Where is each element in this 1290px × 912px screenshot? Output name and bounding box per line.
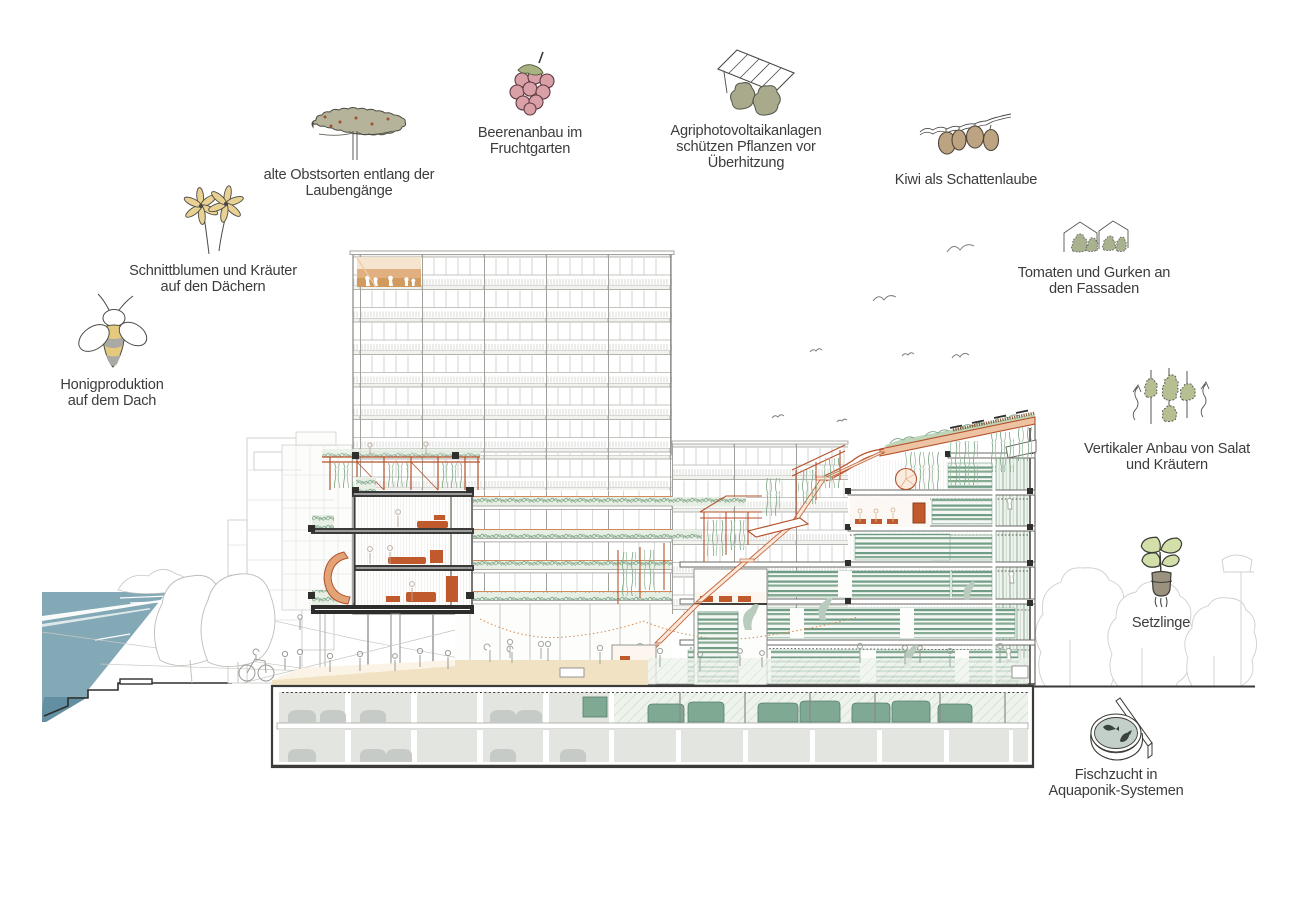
svg-text:auf den Dächern: auf den Dächern bbox=[161, 279, 266, 295]
svg-text:Fischzucht in: Fischzucht in bbox=[1075, 767, 1158, 783]
svg-text:schützen Pflanzen vor: schützen Pflanzen vor bbox=[676, 139, 816, 155]
svg-text:auf dem Dach: auf dem Dach bbox=[68, 393, 157, 409]
svg-text:Kiwi als Schattenlaube: Kiwi als Schattenlaube bbox=[895, 172, 1038, 188]
svg-text:Setzlinge: Setzlinge bbox=[1132, 615, 1190, 631]
svg-text:Aquaponik-Systemen: Aquaponik-Systemen bbox=[1048, 783, 1183, 799]
svg-text:Tomaten und Gurken an: Tomaten und Gurken an bbox=[1018, 265, 1170, 281]
svg-text:und Kräutern: und Kräutern bbox=[1126, 457, 1208, 473]
svg-text:alte Obstsorten entlang der: alte Obstsorten entlang der bbox=[264, 167, 435, 183]
svg-text:den Fassaden: den Fassaden bbox=[1049, 281, 1139, 297]
svg-text:Überhitzung: Überhitzung bbox=[708, 153, 785, 171]
svg-text:Beerenanbau im: Beerenanbau im bbox=[478, 125, 582, 141]
svg-text:Laubengänge: Laubengänge bbox=[305, 183, 392, 199]
svg-text:Fruchtgarten: Fruchtgarten bbox=[490, 141, 570, 157]
svg-text:Vertikaler Anbau von Salat: Vertikaler Anbau von Salat bbox=[1084, 441, 1250, 457]
svg-text:Honigproduktion: Honigproduktion bbox=[60, 377, 163, 393]
svg-text:Schnittblumen und Kräuter: Schnittblumen und Kräuter bbox=[129, 263, 297, 279]
svg-text:Agriphotovoltaikanlagen: Agriphotovoltaikanlagen bbox=[670, 123, 821, 139]
